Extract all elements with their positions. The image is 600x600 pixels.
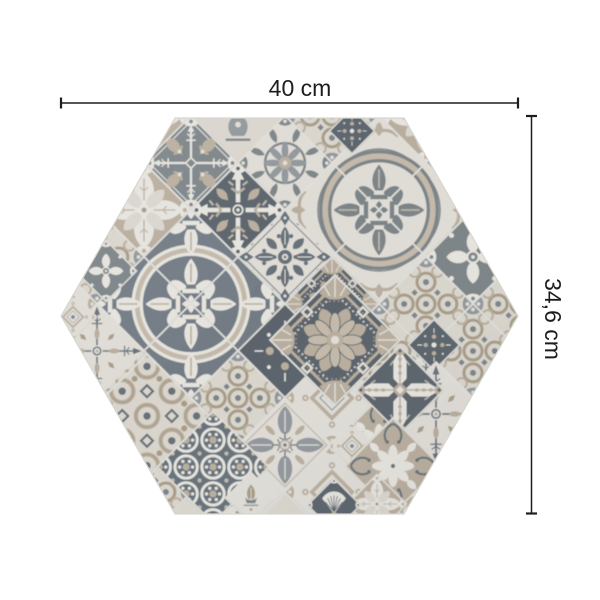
svg-text:34,6 cm: 34,6 cm bbox=[540, 278, 566, 360]
svg-text:40 cm: 40 cm bbox=[269, 75, 332, 101]
